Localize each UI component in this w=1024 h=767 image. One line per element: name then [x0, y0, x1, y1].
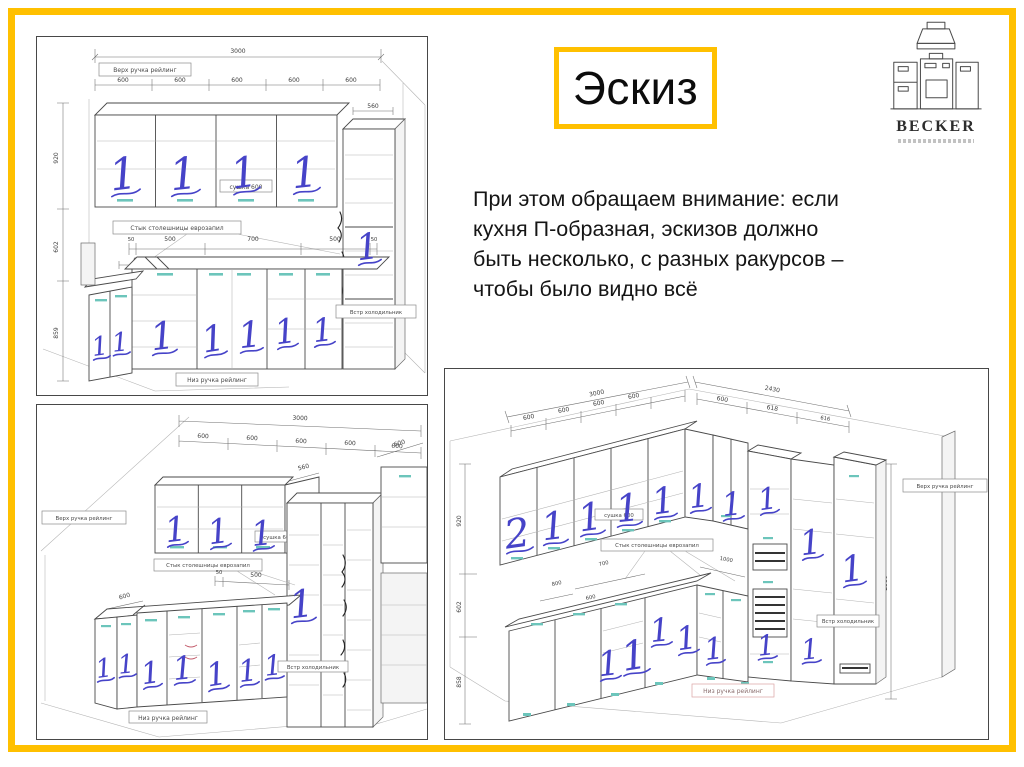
dim-units: 600 600 600 600 600 — [95, 77, 380, 91]
label-top-rail: Верх ручка рейлинг — [42, 511, 126, 524]
sketch-bottom-right: 3000 2430 600 600 600 600 600 618 616 92… — [444, 368, 989, 740]
label-joint: Стык столешницы еврозапил — [113, 221, 340, 258]
svg-text:600: 600 — [295, 438, 307, 445]
label-joint: Стык столешницы еврозапил — [601, 539, 735, 581]
svg-text:Встр холодильник: Встр холодильник — [287, 665, 340, 671]
svg-text:50: 50 — [216, 570, 223, 576]
svg-text:920: 920 — [456, 515, 463, 527]
svg-text:Стык столешницы еврозапил: Стык столешницы еврозапил — [615, 543, 699, 549]
right-back-cabinets: 600 — [377, 438, 427, 703]
svg-text:600: 600 — [197, 433, 209, 440]
dims-left: 920 602 859 — [53, 103, 69, 381]
svg-text:600: 600 — [246, 435, 258, 442]
svg-text:500: 500 — [250, 572, 262, 579]
label-joint: Стык столешницы еврозапил — [154, 559, 295, 595]
body-line: чтобы было видно всё — [473, 274, 933, 304]
slide-body-text: При этом обращаем внимание: если кухня П… — [473, 184, 933, 304]
svg-text:600: 600 — [393, 438, 406, 448]
dim-units: 600 600 600 600 600 — [179, 433, 421, 459]
svg-text:500: 500 — [164, 236, 176, 243]
svg-text:560: 560 — [297, 463, 310, 473]
svg-text:Встр холодильник: Встр холодильник — [822, 619, 875, 625]
brand-tagline-illegible — [898, 139, 974, 143]
svg-text:Низ ручка рейлинг: Низ ручка рейлинг — [138, 715, 198, 722]
svg-text:600: 600 — [522, 413, 535, 422]
svg-text:Верх ручка рейлинг: Верх ручка рейлинг — [917, 483, 974, 490]
svg-text:859: 859 — [53, 327, 60, 339]
svg-text:700: 700 — [247, 236, 259, 243]
svg-text:3000: 3000 — [292, 415, 308, 423]
label-top-rail: Верх ручка рейлинг — [99, 63, 191, 76]
svg-text:602: 602 — [53, 241, 60, 253]
svg-text:600: 600 — [557, 406, 570, 415]
svg-text:600: 600 — [231, 77, 243, 84]
svg-text:600: 600 — [345, 77, 357, 84]
label-fridge: Встр холодильник — [336, 305, 416, 318]
svg-text:3000: 3000 — [230, 48, 245, 55]
svg-text:50: 50 — [128, 237, 135, 243]
svg-text:700: 700 — [598, 560, 609, 568]
svg-text:Стык столешницы еврозапил: Стык столешницы еврозапил — [130, 225, 223, 232]
sketch-bottom-left: 3000 600 600 600 600 600 Верх ручка рейл… — [36, 404, 428, 740]
dim-units-right: 600 618 616 — [697, 393, 849, 433]
svg-text:800: 800 — [551, 580, 562, 588]
kitchen-logo-icon — [880, 20, 992, 120]
page-title: Эскиз — [573, 61, 698, 115]
svg-text:600: 600 — [174, 77, 186, 84]
svg-text:602: 602 — [456, 601, 463, 613]
dim-total: 3000 — [179, 415, 421, 437]
svg-text:600: 600 — [288, 77, 300, 84]
svg-text:Верх ручка рейлинг: Верх ручка рейлинг — [56, 515, 113, 522]
svg-text:600: 600 — [118, 592, 131, 602]
label-top-rail: Верх ручка рейлинг — [903, 479, 987, 492]
dims-left-vertical: 920 602 858 — [456, 464, 477, 724]
svg-text:Низ ручка рейлинг: Низ ручка рейлинг — [703, 688, 763, 695]
label-bottom-rail: Низ ручка рейлинг — [129, 711, 207, 723]
svg-text:600: 600 — [627, 392, 640, 401]
label-bottom-rail: Низ ручка рейлинг — [692, 684, 774, 697]
svg-text:Верх ручка рейлинг: Верх ручка рейлинг — [113, 67, 176, 74]
svg-text:Стык столешницы еврозапил: Стык столешницы еврозапил — [166, 563, 250, 569]
becker-logo: BECKER — [880, 20, 992, 143]
label-fridge: Встр холодильник — [817, 615, 879, 627]
sketch-top-left: 3000 Верх ручка рейлинг 600 600 600 600 … — [36, 36, 428, 396]
svg-text:920: 920 — [53, 152, 60, 164]
svg-text:600: 600 — [344, 440, 356, 447]
svg-text:500: 500 — [329, 236, 341, 243]
svg-text:Встр холодильник: Встр холодильник — [350, 310, 403, 316]
slide-canvas: Эскиз При этом обращаем внимание: если к… — [0, 0, 1024, 767]
svg-text:618: 618 — [766, 404, 779, 413]
body-line: кухня П-образная, эскизов должно — [473, 214, 933, 244]
slide-title-box: Эскиз — [554, 47, 717, 129]
body-line: быть несколько, с разных ракурсов – — [473, 244, 933, 274]
dim-total: 3000 — [92, 48, 384, 63]
svg-text:560: 560 — [367, 103, 379, 110]
svg-text:2430: 2430 — [764, 385, 780, 395]
svg-text:1000: 1000 — [719, 556, 733, 564]
svg-text:858: 858 — [456, 676, 463, 688]
svg-text:3000: 3000 — [589, 389, 606, 399]
label-fridge: Встр холодильник — [278, 661, 348, 672]
label-bottom-rail: Низ ручка рейлинг — [176, 373, 258, 386]
svg-text:Низ ручка рейлинг: Низ ручка рейлинг — [187, 377, 247, 384]
svg-text:600: 600 — [117, 77, 129, 84]
body-line: При этом обращаем внимание: если — [473, 184, 933, 214]
dim-units-left: 600 600 600 600 — [511, 390, 685, 437]
brand-name: BECKER — [880, 118, 992, 136]
svg-text:600: 600 — [592, 399, 605, 408]
